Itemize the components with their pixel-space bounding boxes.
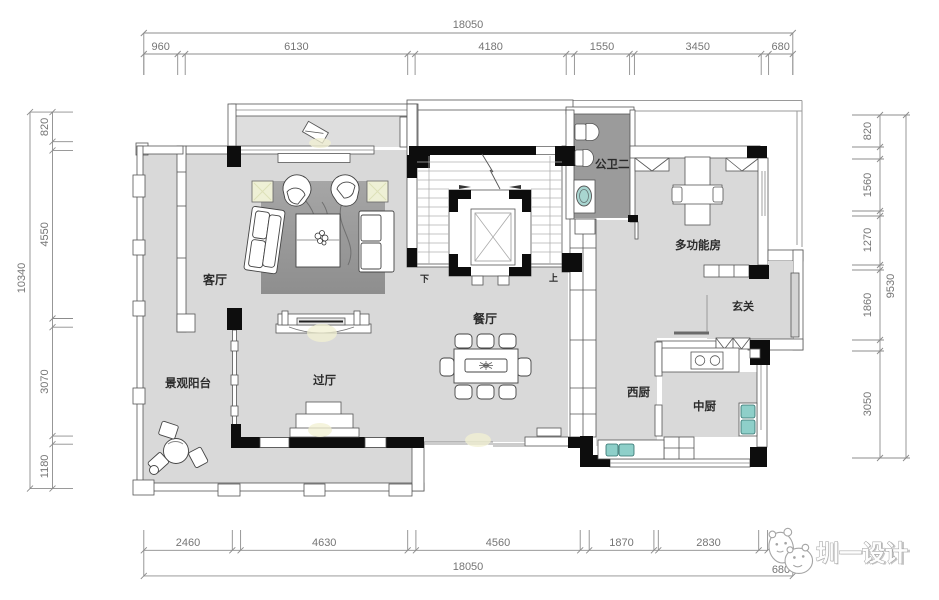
svg-text:1270: 1270 — [862, 228, 874, 252]
svg-text:多功能房: 多功能房 — [675, 238, 721, 252]
svg-text:4550: 4550 — [39, 222, 51, 246]
svg-text:1180: 1180 — [39, 455, 51, 479]
svg-text:820: 820 — [39, 118, 51, 136]
svg-text:10340: 10340 — [16, 263, 28, 294]
svg-text:过厅: 过厅 — [313, 373, 336, 387]
svg-text:1560: 1560 — [862, 173, 874, 197]
svg-text:公卫二: 公卫二 — [595, 158, 630, 171]
svg-text:4560: 4560 — [486, 537, 510, 549]
svg-text:6130: 6130 — [284, 41, 308, 53]
svg-text:9530: 9530 — [885, 274, 897, 298]
svg-text:玄关: 玄关 — [732, 299, 754, 313]
svg-text:680: 680 — [772, 41, 790, 53]
svg-text:上: 上 — [549, 272, 558, 283]
svg-text:景观阳台: 景观阳台 — [164, 376, 211, 390]
svg-text:1870: 1870 — [609, 537, 633, 549]
svg-text:1860: 1860 — [862, 293, 874, 317]
svg-text:3450: 3450 — [686, 41, 710, 53]
svg-text:820: 820 — [862, 122, 874, 140]
svg-text:3070: 3070 — [39, 369, 51, 393]
svg-text:18050: 18050 — [453, 561, 484, 573]
svg-text:客厅: 客厅 — [202, 272, 227, 287]
svg-text:餐厅: 餐厅 — [473, 311, 497, 326]
svg-text:960: 960 — [152, 41, 170, 53]
svg-text:18050: 18050 — [453, 19, 484, 31]
svg-text:2460: 2460 — [176, 537, 200, 549]
svg-text:圳一设计: 圳一设计 — [816, 540, 908, 566]
svg-text:中厨: 中厨 — [693, 399, 716, 413]
svg-text:2830: 2830 — [696, 537, 720, 549]
svg-text:西厨: 西厨 — [627, 386, 650, 399]
svg-text:4630: 4630 — [312, 537, 336, 549]
svg-text:4180: 4180 — [478, 41, 502, 53]
svg-text:下: 下 — [420, 274, 429, 284]
svg-text:3050: 3050 — [862, 392, 874, 416]
svg-text:1550: 1550 — [590, 41, 614, 53]
